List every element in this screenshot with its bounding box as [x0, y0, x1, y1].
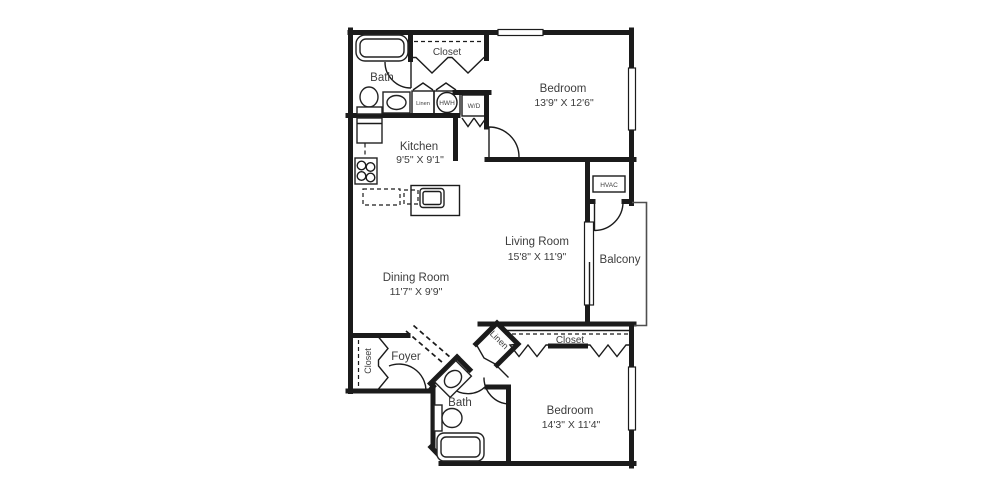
kitchen-label: Kitchen	[400, 141, 438, 153]
living-room-label: Living Room	[505, 236, 569, 248]
bedroom1-dims: 13'9" X 12'6"	[534, 97, 594, 109]
floor-plan-drawing: Bath Closet Bedroom 13'9" X 12'6" Linen …	[0, 0, 1000, 480]
floor-plan: Bath Closet Bedroom 13'9" X 12'6" Linen …	[0, 0, 1000, 480]
dining-room-dims: 11'7" X 9'9"	[390, 286, 443, 298]
dishwasher-dashed	[363, 189, 400, 205]
living-room-dims: 15'8" X 11'9"	[508, 251, 567, 263]
window-bedroom2-right	[629, 367, 636, 430]
dining-room-label: Dining Room	[383, 272, 449, 284]
window-bedroom1-top	[498, 30, 543, 36]
bedroom2-label: Bedroom	[547, 405, 594, 417]
bathtub-inner	[441, 437, 480, 457]
sink-icon	[387, 96, 406, 110]
wd-label: W/D	[468, 103, 481, 110]
closet1-bifold-doors	[412, 58, 486, 74]
closet3-label: Closet	[556, 335, 585, 346]
closet2-bifold-doors	[379, 337, 389, 389]
wd-bifold-doors	[462, 118, 486, 127]
door-foyer-entry	[389, 364, 426, 390]
closet1-label: Closet	[433, 47, 462, 58]
toilet-icon	[360, 87, 378, 107]
refrigerator-icon	[357, 118, 382, 143]
bath2-label: Bath	[448, 397, 472, 409]
bedroom2-dims: 14'3" X 11'4"	[542, 419, 601, 431]
door-hvac-balcony	[595, 202, 624, 231]
closet3-bifold-right	[588, 345, 631, 357]
bath1-label: Bath	[370, 72, 394, 84]
window-bedroom1-right	[629, 68, 636, 130]
linen2-door-face	[476, 344, 497, 365]
bath2-fixtures	[434, 361, 484, 461]
door-bedroom1	[489, 127, 519, 157]
linen1-label: Linen	[416, 101, 430, 107]
toilet-icon	[442, 409, 462, 428]
hwh-label: HWH	[439, 100, 455, 107]
kitchen-fixtures	[355, 118, 460, 216]
balcony-label: Balcony	[600, 254, 641, 266]
kitchen-dims: 9'5" X 9'1"	[396, 154, 444, 166]
linen-hwh-bifold-doors	[413, 83, 456, 90]
toilet-tank	[357, 107, 382, 114]
foyer-label: Foyer	[391, 351, 421, 363]
bathtub-inner	[360, 39, 404, 57]
bedroom1-label: Bedroom	[540, 83, 587, 95]
toilet-tank	[434, 405, 442, 431]
closet2-label: Closet	[363, 348, 373, 374]
hvac-label: HVAC	[600, 182, 618, 189]
